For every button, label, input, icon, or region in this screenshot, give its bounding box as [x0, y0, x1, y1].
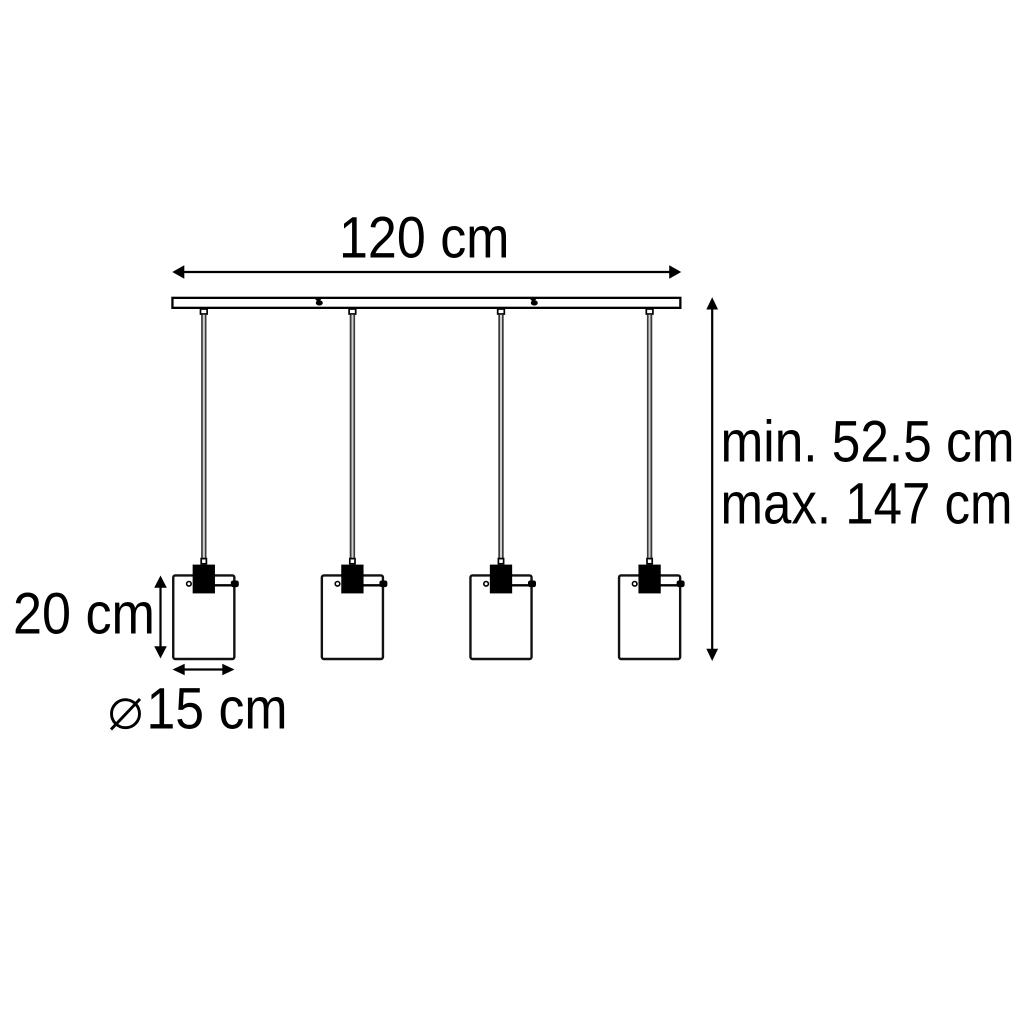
svg-text:max. 147 cm: max. 147 cm: [721, 472, 1013, 537]
svg-text:min. 52.5 cm: min. 52.5 cm: [721, 410, 1015, 475]
svg-text:15 cm: 15 cm: [147, 677, 288, 742]
svg-text:120 cm: 120 cm: [339, 206, 510, 271]
svg-text:20 cm: 20 cm: [13, 582, 155, 647]
